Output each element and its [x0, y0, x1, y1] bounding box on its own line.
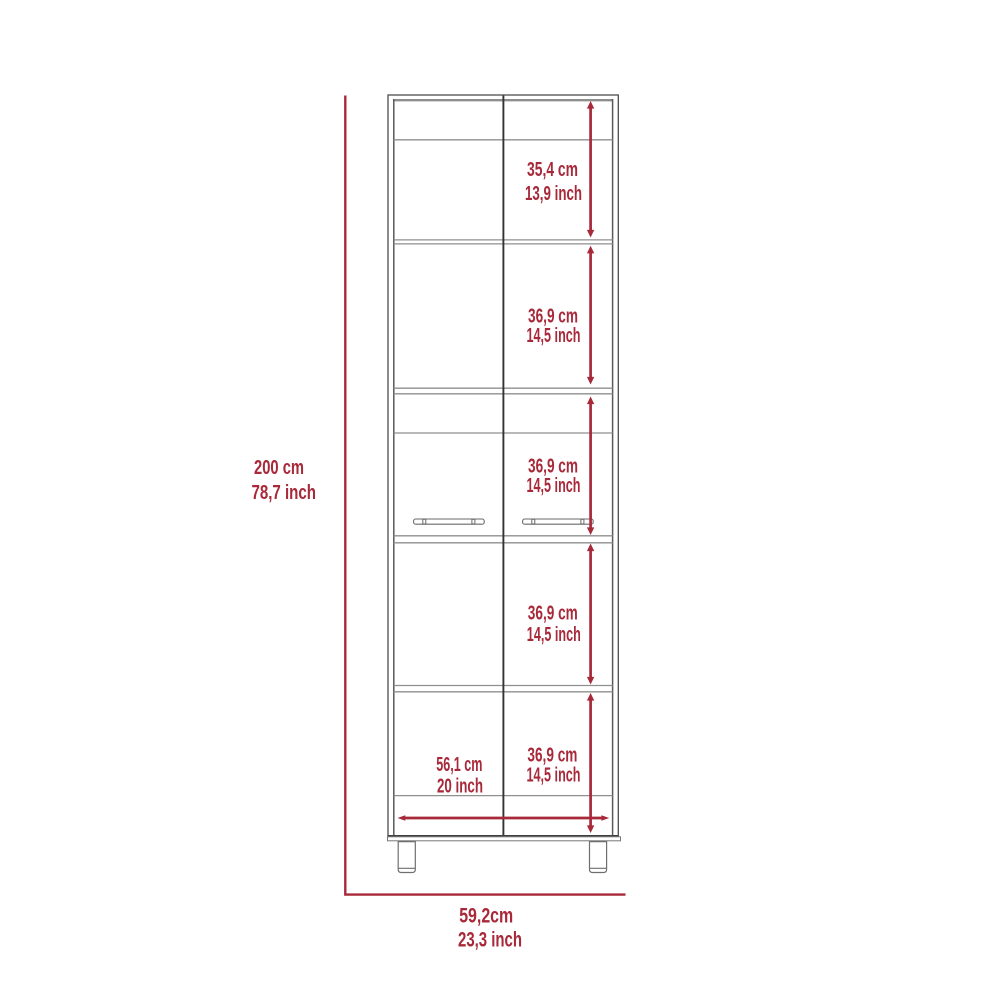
- svg-text:14,5 inch: 14,5 inch: [527, 475, 581, 497]
- svg-text:36,9 cm: 36,9 cm: [528, 455, 578, 477]
- svg-text:20 inch: 20 inch: [437, 775, 483, 797]
- svg-text:13,9 inch: 13,9 inch: [525, 183, 582, 205]
- svg-text:36,9 cm: 36,9 cm: [528, 602, 578, 624]
- svg-text:36,9 cm: 36,9 cm: [527, 745, 577, 767]
- svg-text:200 cm: 200 cm: [254, 457, 304, 479]
- svg-text:59,2cm: 59,2cm: [459, 904, 513, 927]
- svg-text:36,9 cm: 36,9 cm: [528, 305, 578, 327]
- svg-text:14,5 inch: 14,5 inch: [527, 764, 581, 786]
- svg-text:14,5 inch: 14,5 inch: [527, 624, 581, 646]
- svg-text:23,3 inch: 23,3 inch: [458, 928, 522, 951]
- svg-text:56,1 cm: 56,1 cm: [436, 754, 482, 776]
- svg-text:78,7 inch: 78,7 inch: [251, 482, 316, 504]
- svg-text:35,4 cm: 35,4 cm: [527, 159, 578, 181]
- svg-text:14,5 inch: 14,5 inch: [527, 325, 581, 347]
